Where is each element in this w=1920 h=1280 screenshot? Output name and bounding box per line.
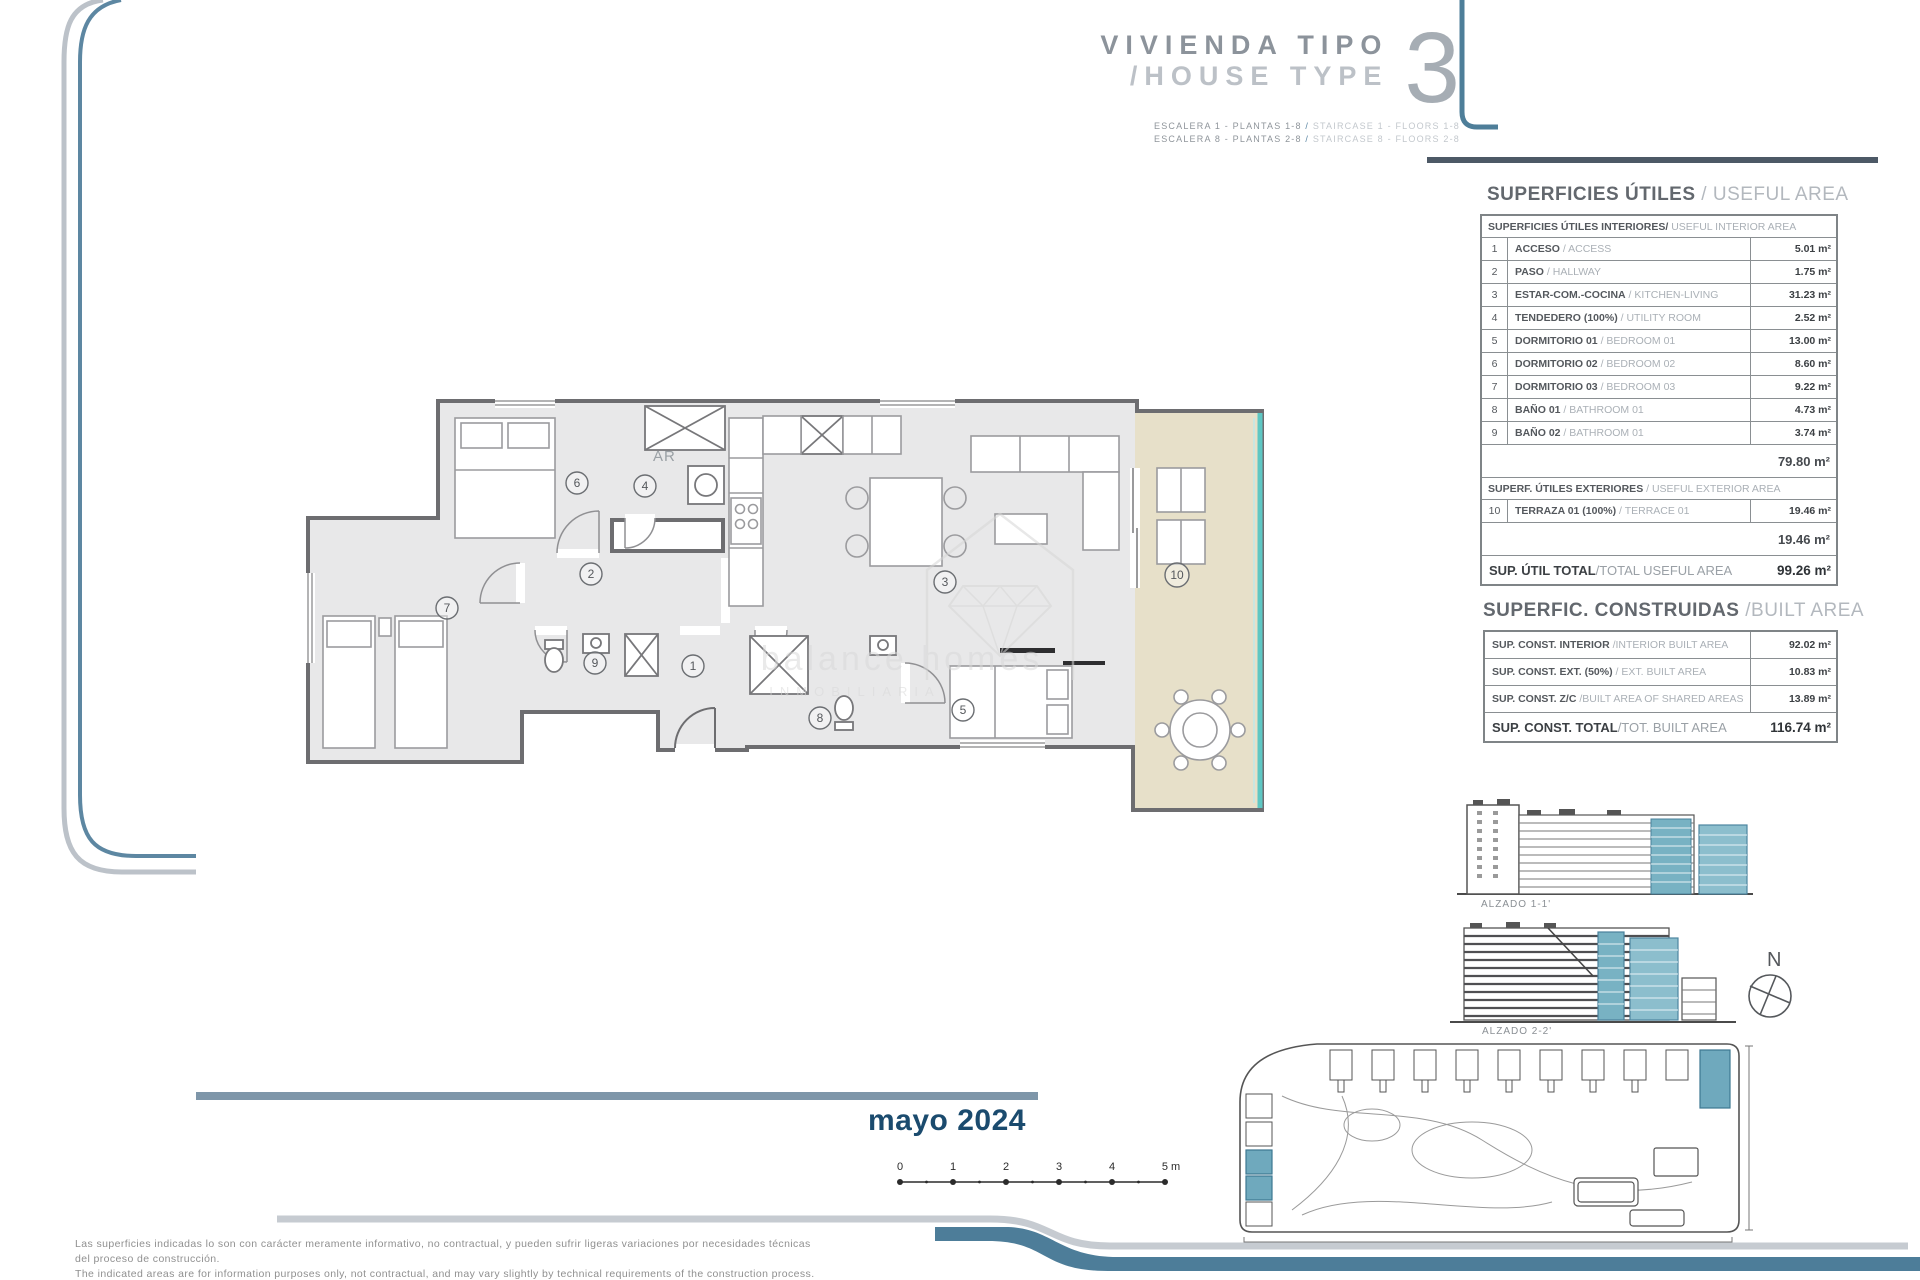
tv-bench	[1063, 661, 1105, 665]
washing-machine	[688, 466, 724, 504]
svg-text:1: 1	[690, 659, 697, 673]
title-en: /HOUSE TYPE	[1100, 61, 1388, 92]
exterior-subtotal: 19.46 m²	[1482, 523, 1836, 556]
table-top-rule	[1427, 157, 1878, 163]
tower-left	[1467, 799, 1519, 894]
useful-total-value: 99.26 m²	[1777, 563, 1831, 578]
shower-bath9	[625, 634, 658, 676]
row-number: 8	[1482, 399, 1508, 421]
row-label: BAÑO 01 / BATHROOM 01	[1508, 404, 1750, 416]
room-number-10: 10	[1165, 563, 1189, 587]
built-area-title: SUPERFIC. CONSTRUIDAS /BUILT AREA	[1483, 600, 1864, 622]
row-label: ESTAR-COM.-COCINA / KITCHEN-LIVING	[1508, 289, 1750, 301]
svg-text:4: 4	[642, 479, 649, 493]
row-value: 13.00 m²	[1750, 330, 1836, 352]
row-label: PASO / HALLWAY	[1508, 266, 1750, 278]
title-block: VIVIENDA TIPO /HOUSE TYPE 3 ESCALERA 1 -…	[1080, 22, 1460, 146]
tower-highlighted-1	[1598, 932, 1624, 1020]
row-label: TERRAZA 01 (100%) / TERRACE 01	[1508, 505, 1750, 517]
sink-bath9	[583, 634, 609, 653]
table-row: 7 DORMITORIO 03 / BEDROOM 03 9.22 m²	[1482, 376, 1836, 399]
table-row: SUP. CONST. Z/C /BUILT AREA OF SHARED AR…	[1485, 686, 1836, 713]
title-subtitles: ESCALERA 1 - PLANTAS 1-8 / STAIRCASE 1 -…	[1080, 120, 1460, 146]
unit-blocks-top	[1330, 1050, 1688, 1092]
row-number: 4	[1482, 307, 1508, 329]
row-number: 3	[1482, 284, 1508, 306]
interior-header: SUPERFICIES ÚTILES INTERIORES/ USEFUL IN…	[1482, 216, 1836, 238]
site-plan	[1222, 1030, 1762, 1258]
block-right	[1682, 978, 1716, 1020]
svg-text:8: 8	[817, 711, 824, 725]
row-number: 5	[1482, 330, 1508, 352]
scale-tick-1: 1	[950, 1161, 956, 1173]
row-number: 1	[1482, 238, 1508, 260]
svg-text:9: 9	[592, 656, 599, 670]
date-label: mayo 2024	[868, 1104, 1026, 1138]
row-label: BAÑO 02 / BATHROOM 01	[1508, 427, 1750, 439]
row-number: 7	[1482, 376, 1508, 398]
elevation-2: ALZADO 2-2'	[1448, 918, 1738, 1036]
useful-area-title: SUPERFICIES ÚTILES / USEFUL AREA	[1487, 184, 1849, 206]
row-number: 6	[1482, 353, 1508, 375]
disclaimer-es-line1: Las superficies indicadas lo son con car…	[75, 1237, 905, 1252]
bed-double-bedroom6	[455, 418, 555, 538]
room-number-8: 8	[809, 707, 831, 729]
row-value: 13.89 m²	[1750, 686, 1836, 712]
highlighted-unit-left-2	[1246, 1176, 1272, 1200]
window	[495, 398, 555, 408]
row-value: 8.60 m²	[1750, 353, 1836, 375]
room-number-7: 7	[436, 597, 458, 619]
scale-tick-3: 3	[1056, 1161, 1062, 1173]
row-value: 2.52 m²	[1750, 307, 1836, 329]
stove	[731, 498, 761, 544]
floor-plan: balance homes INMOBILIARIA AR 1 2 3 4 5 …	[295, 318, 1275, 818]
scale-tick-2: 2	[1003, 1161, 1009, 1173]
footer-slate-bar	[196, 1092, 1038, 1100]
window	[960, 740, 1045, 750]
ar-room-label: AR	[653, 448, 676, 465]
row-label: ACCESO / ACCESS	[1508, 243, 1750, 255]
table-row: 10 TERRAZA 01 (100%) / TERRACE 01 19.46 …	[1482, 500, 1836, 523]
built-area-table: SUP. CONST. INTERIOR /INTERIOR BUILT ARE…	[1483, 630, 1838, 743]
row-value: 10.83 m²	[1750, 659, 1836, 685]
interior-subtotal: 79.80 m²	[1482, 445, 1836, 478]
elevation-1: ALZADO 1-1'	[1455, 795, 1755, 913]
border-curve-gray	[64, 0, 196, 872]
subtitle-line-1: ESCALERA 1 - PLANTAS 1-8 / STAIRCASE 1 -…	[1080, 120, 1460, 133]
elevation-1-label: ALZADO 1-1'	[1481, 899, 1551, 910]
table-row: 5 DORMITORIO 01 / BEDROOM 01 13.00 m²	[1482, 330, 1836, 353]
useful-total-row: SUP. ÚTIL TOTAL/TOTAL USEFUL AREA 99.26 …	[1482, 556, 1836, 584]
room-number-9: 9	[584, 652, 606, 674]
title-es: VIVIENDA TIPO	[1100, 30, 1388, 61]
table-row: 3 ESTAR-COM.-COCINA / KITCHEN-LIVING 31.…	[1482, 284, 1836, 307]
useful-area-table: SUPERFICIES ÚTILES INTERIORES/ USEFUL IN…	[1480, 214, 1838, 586]
scale-tick-0: 0	[897, 1161, 903, 1173]
built-total-value: 116.74 m²	[1770, 720, 1831, 735]
disclaimer-en: The indicated areas are for information …	[75, 1267, 905, 1280]
room-number-6: 6	[566, 472, 588, 494]
row-value: 3.74 m²	[1750, 422, 1836, 444]
row-label: DORMITORIO 02 / BEDROOM 02	[1508, 358, 1750, 370]
disclaimer-es-line2: del proceso de construcción.	[75, 1252, 905, 1267]
row-label: DORMITORIO 03 / BEDROOM 03	[1508, 381, 1750, 393]
row-label: TENDEDERO (100%) / UTILITY ROOM	[1508, 312, 1750, 324]
table-row: 9 BAÑO 02 / BATHROOM 01 3.74 m²	[1482, 422, 1836, 445]
site-boundary	[1240, 1044, 1739, 1232]
table-row: 6 DORMITORIO 02 / BEDROOM 02 8.60 m²	[1482, 353, 1836, 376]
row-value: 31.23 m²	[1750, 284, 1836, 306]
plan-sheet: VIVIENDA TIPO /HOUSE TYPE 3 ESCALERA 1 -…	[0, 0, 1920, 1280]
top-right-accent-line	[1462, 0, 1498, 127]
room-number-1: 1	[682, 655, 704, 677]
watermark-text-2: INMOBILIARIA	[769, 684, 940, 699]
row-label: SUP. CONST. EXT. (50%) / EXT. BUILT AREA	[1485, 666, 1750, 678]
scale-bar: 0 1 2 3 4 5 m	[890, 1158, 1200, 1196]
row-value: 1.75 m²	[1750, 261, 1836, 283]
table-row: 1 ACCESO / ACCESS 5.01 m²	[1482, 238, 1836, 261]
row-number: 2	[1482, 261, 1508, 283]
tower-highlighted-2	[1630, 938, 1678, 1020]
window	[880, 398, 955, 408]
row-value: 92.02 m²	[1750, 632, 1836, 658]
kitchen-sink-unit	[801, 416, 843, 454]
svg-text:2: 2	[588, 567, 595, 581]
svg-text:10: 10	[1170, 568, 1184, 582]
row-label: SUP. CONST. Z/C /BUILT AREA OF SHARED AR…	[1485, 693, 1750, 705]
table-row: SUP. CONST. EXT. (50%) / EXT. BUILT AREA…	[1485, 659, 1836, 686]
row-label: DORMITORIO 01 / BEDROOM 01	[1508, 335, 1750, 347]
tower-right-highlighted	[1699, 825, 1747, 894]
scale-tick-5: 5 m	[1162, 1161, 1180, 1173]
compass-circle	[1749, 975, 1791, 1017]
toilet-bath8	[835, 696, 853, 730]
row-value: 5.01 m²	[1750, 238, 1836, 260]
svg-text:3: 3	[942, 575, 949, 589]
row-value: 4.73 m²	[1750, 399, 1836, 421]
window	[305, 573, 315, 663]
highlighted-unit-top-right	[1700, 1050, 1730, 1108]
stair-core	[645, 406, 725, 450]
table-row: 8 BAÑO 01 / BATHROOM 01 4.73 m²	[1482, 399, 1836, 422]
row-value: 19.46 m²	[1750, 500, 1836, 522]
toilet-bath9	[545, 640, 563, 672]
sliding-door	[1130, 468, 1140, 588]
row-value: 9.22 m²	[1750, 376, 1836, 398]
subtitle-line-2: ESCALERA 8 - PLANTAS 2-8 / STAIRCASE 8 -…	[1080, 133, 1460, 146]
row-number: 10	[1482, 500, 1508, 522]
room-number-5: 5	[952, 699, 974, 721]
svg-text:5: 5	[960, 703, 967, 717]
highlighted-unit-left-1	[1246, 1150, 1272, 1174]
table-row: 2 PASO / HALLWAY 1.75 m²	[1482, 261, 1836, 284]
north-compass: N	[1738, 948, 1808, 1028]
table-row: 4 TENDEDERO (100%) / UTILITY ROOM 2.52 m…	[1482, 307, 1836, 330]
table-row: SUP. CONST. INTERIOR /INTERIOR BUILT ARE…	[1485, 632, 1836, 659]
room-number-2: 2	[580, 563, 602, 585]
row-number: 9	[1482, 422, 1508, 444]
disclaimer: Las superficies indicadas lo son con car…	[75, 1237, 905, 1280]
scale-tick-4: 4	[1109, 1161, 1115, 1173]
north-label: N	[1767, 949, 1781, 971]
svg-text:7: 7	[444, 601, 451, 615]
watermark-text-1: balance homes	[761, 640, 1044, 678]
border-curve-blue	[80, 0, 196, 856]
svg-text:6: 6	[574, 476, 581, 490]
house-type-number: 3	[1404, 22, 1460, 114]
pools	[1574, 1148, 1698, 1226]
row-label: SUP. CONST. INTERIOR /INTERIOR BUILT ARE…	[1485, 639, 1750, 651]
slab-highlighted	[1651, 819, 1691, 894]
built-total-row: SUP. CONST. TOTAL/TOT. BUILT AREA 116.74…	[1485, 713, 1836, 741]
room-number-3: 3	[934, 571, 956, 593]
room-number-4: 4	[634, 475, 656, 497]
exterior-header: SUPERF. ÚTILES EXTERIORES / USEFUL EXTER…	[1482, 478, 1836, 500]
